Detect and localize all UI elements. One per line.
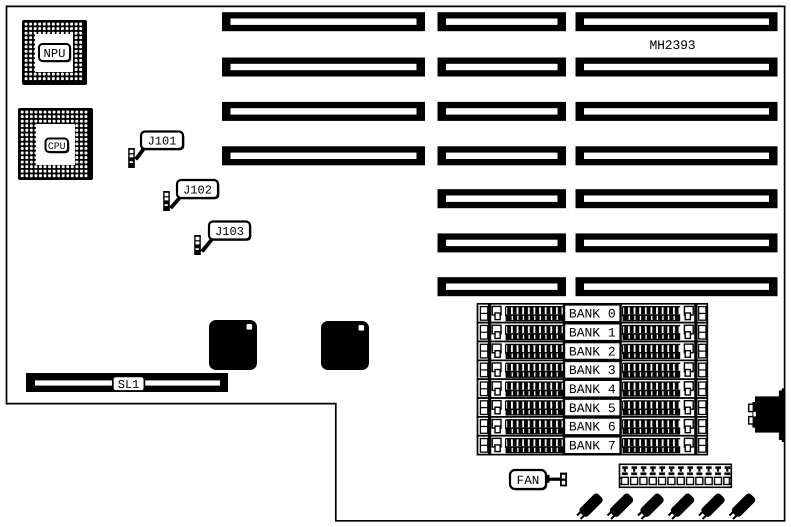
svg-text:BANK 2: BANK 2 [569, 344, 616, 359]
svg-text:BANK 6: BANK 6 [569, 420, 616, 435]
svg-text:BANK 4: BANK 4 [569, 382, 616, 397]
svg-text:NPU: NPU [44, 47, 66, 61]
svg-text:BANK 7: BANK 7 [569, 439, 616, 454]
svg-text:SL1: SL1 [118, 378, 140, 392]
svg-text:J103: J103 [215, 225, 244, 239]
svg-text:FAN: FAN [517, 474, 540, 488]
svg-text:BANK 3: BANK 3 [569, 363, 616, 378]
svg-text:BANK 1: BANK 1 [569, 325, 616, 340]
svg-text:BANK 0: BANK 0 [569, 307, 616, 322]
svg-text:J101: J101 [148, 135, 177, 149]
svg-text:CPU: CPU [48, 141, 66, 152]
svg-text:MH2393: MH2393 [650, 38, 696, 53]
svg-text:BANK 5: BANK 5 [569, 401, 616, 416]
svg-text:J102: J102 [183, 183, 212, 197]
